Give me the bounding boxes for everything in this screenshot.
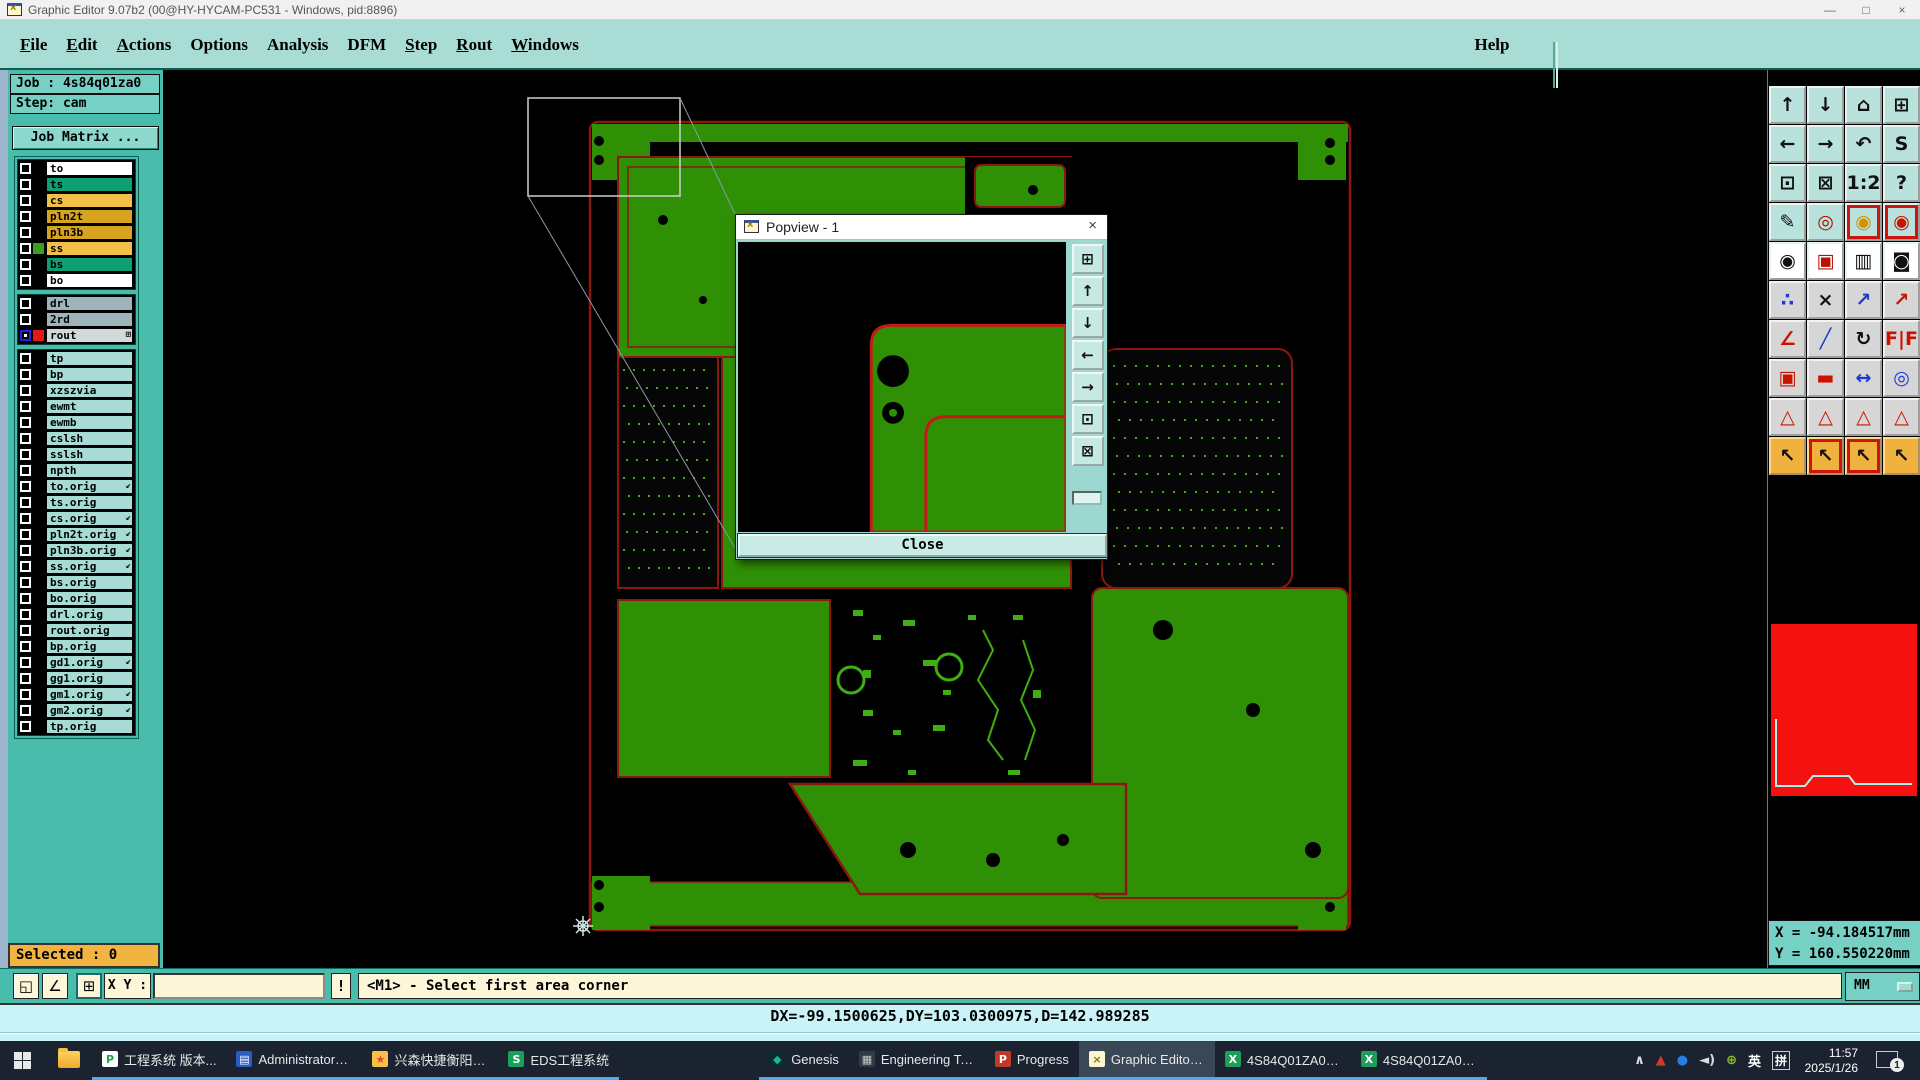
layer-name[interactable]: bs [46, 257, 133, 272]
layer-visibility-checkbox[interactable] [20, 689, 31, 700]
app-label: 4S84Q01ZA0预... [1383, 1050, 1477, 1069]
windows-taskbar: P 工程系统 版本... ▤ Administrator^ ... ★ 兴森快捷… [0, 1041, 1920, 1080]
home-view-icon[interactable]: ⌂ [1845, 86, 1882, 124]
layer-visibility-checkbox[interactable] [20, 417, 31, 428]
layer-name[interactable]: tp [46, 351, 133, 366]
pan-view-up-icon[interactable]: ↑ [1769, 86, 1806, 124]
tray-ime-pin[interactable]: 拼 [1772, 1051, 1790, 1070]
layer-name[interactable]: ss [46, 241, 133, 256]
taskbar-item-4s84-yu[interactable]: X 4S84Q01ZA0预... [1351, 1041, 1487, 1080]
menu-actions[interactable]: Actions [117, 35, 172, 55]
popview-clone-icon[interactable]: ⊞ [1072, 244, 1104, 274]
app-icon: ▦ [859, 1051, 875, 1067]
notification-center-icon[interactable]: 1 [1876, 1051, 1898, 1068]
popview-artwork [738, 242, 1066, 532]
layer-group-misc: tp bp xzszvia ewmt ewmb cslsh [17, 349, 136, 736]
layer-visibility-checkbox[interactable] [20, 353, 31, 364]
menu-dfm[interactable]: DFM [347, 35, 386, 55]
layer-name[interactable]: cslsh [46, 431, 133, 446]
layer-row[interactable]: tp.orig [19, 719, 134, 734]
mirror-feature-icon[interactable]: F|F [1883, 320, 1920, 358]
layer-color-swatch[interactable] [33, 625, 44, 636]
pan-view-down-icon[interactable]: ↓ [1807, 86, 1844, 124]
menu-options[interactable]: Options [190, 35, 248, 55]
layer-visibility-checkbox[interactable] [20, 545, 31, 556]
delta-readout-bar: DX=-99.1500625,DY=103.0300975,D=142.9892… [0, 1003, 1920, 1041]
layer-row[interactable]: bo.orig [19, 591, 134, 606]
measure-ruler-icon[interactable]: ▥ [1845, 242, 1882, 280]
layer-row[interactable]: pln3b.orig↙ [19, 543, 134, 558]
layer-color-swatch[interactable] [33, 529, 44, 540]
menu-divider [1553, 42, 1558, 88]
delta-readout: DX=-99.1500625,DY=103.0300975,D=142.9892… [0, 1007, 1920, 1025]
layer-visibility-checkbox[interactable] [20, 657, 31, 668]
layer-visibility-checkbox[interactable] [20, 609, 31, 620]
layer-flag-icon: ↙ [126, 704, 131, 717]
sidebar: Job : 4s84q01za0 Step: cam Job Matrix ..… [8, 70, 163, 968]
layer-name[interactable]: xzszvia [46, 383, 133, 398]
arc-corner-c-icon[interactable]: △ [1845, 398, 1882, 436]
app-icon: P [102, 1051, 118, 1067]
layer-name[interactable]: npth [46, 463, 133, 478]
app-icon: × [1089, 1051, 1105, 1067]
capture-pad-icon[interactable]: ◙ [1883, 242, 1920, 280]
menu-analysis[interactable]: Analysis [267, 35, 328, 55]
popview-zoom-out-icon[interactable]: ⊠ [1072, 436, 1104, 466]
window-title-bar: Graphic Editor 9.07b2 (00@HY-HYCAM-PC531… [0, 0, 1920, 20]
layer-row[interactable]: bp.orig [19, 639, 134, 654]
layer-flag-icon: ⊞ [126, 329, 131, 342]
zoom-in-area-icon[interactable]: ⊡ [1769, 164, 1806, 202]
menu-windows[interactable]: Windows [511, 35, 579, 55]
layer-row[interactable]: drl.orig [19, 607, 134, 622]
maximize-button[interactable]: □ [1848, 0, 1884, 20]
status-message: <M1> - Select first area corner [358, 973, 1842, 999]
layer-row[interactable]: to.orig↙ [19, 479, 134, 494]
layer-group-board: to ts cs pln2t pln3b ss [17, 159, 136, 290]
layer-visibility-checkbox[interactable] [20, 163, 31, 174]
pan-view-left-icon[interactable]: ← [1769, 125, 1806, 163]
layer-color-swatch[interactable] [33, 577, 44, 588]
layer-color-swatch[interactable] [33, 369, 44, 380]
popview-window-icon [744, 220, 759, 233]
arc-corner-d-icon[interactable]: △ [1883, 398, 1920, 436]
layer-flag-icon: ↙ [126, 480, 131, 493]
popview-toolbar: ⊞↑↓←→⊡⊠ [1068, 242, 1107, 532]
tray-graph-icon[interactable]: ▲ [1656, 1053, 1666, 1068]
start-button[interactable] [14, 1052, 38, 1069]
popview-pan-down-icon[interactable]: ↓ [1072, 308, 1104, 338]
layer-flag-icon: ↙ [126, 560, 131, 573]
pan-view-right-icon[interactable]: → [1807, 125, 1844, 163]
layer-name[interactable]: bs.orig [46, 575, 133, 590]
taskbar-item-graphic-editor[interactable]: × Graphic Editor ... [1079, 1041, 1215, 1080]
minimize-button[interactable]: — [1812, 0, 1848, 20]
measure-distance-icon[interactable]: ↔ [1845, 359, 1882, 397]
copy-circle-icon[interactable]: ↗ [1845, 281, 1882, 319]
layer-name[interactable]: sslsh [46, 447, 133, 462]
layer-visibility-checkbox[interactable] [20, 449, 31, 460]
layer-color-swatch[interactable] [33, 401, 44, 412]
layer-color-swatch[interactable] [33, 259, 44, 270]
popview-title-bar[interactable]: Popview - 1 × [736, 215, 1107, 240]
layer-color-swatch[interactable] [33, 179, 44, 190]
menu-bar: FileEditActionsOptionsAnalysisDFMStepRou… [0, 20, 1920, 70]
setup-tools-icon[interactable]: ✎ [1769, 203, 1806, 241]
layer-name[interactable]: pln2t [46, 209, 133, 224]
layer-row[interactable]: pln2t.orig↙ [19, 527, 134, 542]
popview-dialog: Popview - 1 × ⊞↑↓←→⊡⊠ Close [735, 214, 1108, 560]
layer-row[interactable]: sslsh [19, 447, 134, 462]
taskbar-item-progress[interactable]: P Progress [985, 1041, 1079, 1080]
layer-name[interactable]: ts.orig [46, 495, 133, 510]
layer-visibility-checkbox[interactable] [20, 401, 31, 412]
layer-visibility-checkbox[interactable] [20, 625, 31, 636]
layer-name[interactable]: gd1.orig↙ [46, 655, 133, 670]
layer-name[interactable]: ewmb [46, 415, 133, 430]
signal-layers-a-icon[interactable]: ◉ [1845, 203, 1882, 241]
command-bar: X Y : ! <M1> - Select first area corner … [0, 968, 1920, 1003]
layer-flag-icon: ↙ [126, 656, 131, 669]
layer-row[interactable]: bp [19, 367, 134, 382]
tray-update-icon[interactable]: ⊕ [1726, 1053, 1737, 1068]
tray-volume-icon[interactable]: ◄) [1699, 1053, 1715, 1068]
stretch-pad-icon[interactable]: ▬ [1807, 359, 1844, 397]
layer-row[interactable]: pln2t [19, 209, 134, 224]
popview-close-button[interactable]: Close [738, 534, 1107, 557]
layer-color-swatch[interactable] [33, 275, 44, 286]
app-label: 4S84Q01ZA0制... [1247, 1050, 1341, 1069]
layer-row[interactable]: cs.orig↙ [19, 511, 134, 526]
layer-visibility-checkbox[interactable] [20, 369, 31, 380]
xy-label: X Y : [104, 973, 151, 999]
layer-visibility-checkbox[interactable] [20, 497, 31, 508]
layer-color-swatch[interactable] [33, 385, 44, 396]
layer-row[interactable]: gm2.orig↙ [19, 703, 134, 718]
layer-row[interactable]: rout.orig [19, 623, 134, 638]
delta-separator [0, 1032, 1920, 1034]
app-icon: ◆ [769, 1051, 785, 1067]
layer-color-swatch[interactable] [33, 211, 44, 222]
layer-color-swatch[interactable] [33, 243, 44, 254]
app-label: Engineering To... [881, 1052, 975, 1067]
select-path-icon[interactable]: ↖ [1883, 437, 1920, 475]
zoom-previous-icon[interactable]: ↶ [1845, 125, 1882, 163]
app-window-icon [7, 3, 22, 16]
popview-pan-left-icon[interactable]: ← [1072, 340, 1104, 370]
layer-color-swatch[interactable] [33, 314, 44, 325]
popview-pan-up-icon[interactable]: ↑ [1072, 276, 1104, 306]
layer-row[interactable]: tp [19, 351, 134, 366]
layer-name[interactable]: bo [46, 273, 133, 288]
layer-visibility-checkbox[interactable] [20, 641, 31, 652]
taskbar-item-administrator[interactable]: ▤ Administrator^ ... [226, 1041, 362, 1080]
layer-flag-icon: ↙ [126, 688, 131, 701]
taskbar-clock[interactable]: 11:572025/1/26 [1794, 1046, 1858, 1076]
layer-color-swatch[interactable] [33, 497, 44, 508]
cursor-crosshair-icon [573, 916, 593, 936]
layer-name[interactable]: gg1.orig [46, 671, 133, 686]
layer-name[interactable]: bp.orig [46, 639, 133, 654]
window-frame-strip [0, 20, 8, 1041]
job-label: Job : 4s84q01za0 [10, 74, 160, 94]
layer-color-swatch[interactable] [33, 705, 44, 716]
layer-flag-icon: ↙ [126, 512, 131, 525]
layer-name[interactable]: gm1.orig↙ [46, 687, 133, 702]
menu-step[interactable]: Step [405, 35, 437, 55]
layer-row[interactable]: pln3b [19, 225, 134, 240]
units-panel: MM [1845, 972, 1920, 1001]
taskbar-item-4s84-zhi[interactable]: X 4S84Q01ZA0制... [1215, 1041, 1351, 1080]
layer-row[interactable]: xzszvia [19, 383, 134, 398]
tray-ime-lang[interactable]: 英 [1748, 1051, 1761, 1070]
layer-color-swatch[interactable] [33, 298, 44, 309]
measure-angle-icon[interactable]: ∠ [1769, 320, 1806, 358]
right-toolbar-column: ↑↓⌂⊞←→↶S⊡⊠1:2?✎◎◉◉◉▣▥◙∴×↗↗∠╱↻F|F▣▬↔◎△△△△… [1767, 70, 1920, 968]
layer-flag-icon: ↙ [126, 544, 131, 557]
layer-row[interactable]: ts.orig [19, 495, 134, 510]
layer-color-swatch[interactable] [33, 465, 44, 476]
layer-color-swatch[interactable] [33, 433, 44, 444]
tray-browser-icon[interactable]: ● [1677, 1053, 1688, 1068]
copy-pad-icon[interactable]: ↗ [1883, 281, 1920, 319]
app-label: Administrator^ ... [258, 1052, 352, 1067]
layer-row[interactable]: ewmb [19, 415, 134, 430]
layer-row[interactable]: cslsh [19, 431, 134, 446]
layer-visibility-checkbox[interactable] [20, 298, 31, 309]
layer-visibility-checkbox[interactable] [20, 721, 31, 732]
layer-color-swatch[interactable] [33, 593, 44, 604]
popview-pan-right-icon[interactable]: → [1072, 372, 1104, 402]
layer-name[interactable]: ts [46, 177, 133, 192]
layer-name[interactable]: tp.orig [46, 719, 133, 734]
signal-layers-b-icon[interactable]: ◉ [1883, 203, 1920, 241]
layer-row[interactable]: bs.orig [19, 575, 134, 590]
layer-visibility-checkbox[interactable] [20, 593, 31, 604]
menu-file[interactable]: File [20, 35, 47, 55]
selected-count: Selected : 0 [8, 943, 160, 968]
layer-row[interactable]: 2rd [19, 312, 134, 327]
layer-color-swatch[interactable] [33, 481, 44, 492]
tray-chevron-icon[interactable]: ∧ [1634, 1053, 1645, 1068]
layer-name[interactable]: pln3b [46, 225, 133, 240]
layer-name[interactable]: pln2t.orig↙ [46, 527, 133, 542]
popview-scroll-thumb[interactable] [1072, 491, 1102, 505]
transform-box-icon[interactable]: ▣ [1807, 242, 1844, 280]
menu-help[interactable]: Help [1462, 20, 1522, 70]
layer-name[interactable]: bp [46, 367, 133, 382]
popview-close-x-button[interactable]: × [1088, 217, 1097, 234]
app-icon: X [1225, 1051, 1241, 1067]
select-frame-icon[interactable]: ↖ [1807, 437, 1844, 475]
app-label: 工程系统 版本... [124, 1050, 216, 1069]
layer-name[interactable]: drl.orig [46, 607, 133, 622]
measure-mode-button[interactable]: ∠ [42, 973, 68, 999]
zoom-area-mode-button[interactable]: ◱ [13, 973, 39, 999]
layer-name[interactable]: gm2.orig↙ [46, 703, 133, 718]
layer-list: to ts cs pln2t pln3b ss [14, 156, 139, 739]
app-label: Progress [1017, 1052, 1069, 1067]
close-button[interactable]: × [1884, 0, 1920, 20]
units-toggle[interactable] [1897, 982, 1913, 992]
layer-visibility-checkbox[interactable] [20, 259, 31, 270]
layer-color-swatch[interactable] [33, 657, 44, 668]
menu-rout[interactable]: Rout [456, 35, 492, 55]
command-bang-button[interactable]: ! [331, 973, 351, 999]
query-feature-icon[interactable]: ? [1883, 164, 1920, 202]
layer-visibility-checkbox[interactable] [20, 577, 31, 588]
layer-name[interactable]: to [46, 161, 133, 176]
arc-corner-a-icon[interactable]: △ [1769, 398, 1806, 436]
layer-color-swatch[interactable] [33, 641, 44, 652]
layer-visibility-checkbox[interactable] [20, 227, 31, 238]
app-icon: S [508, 1051, 524, 1067]
layer-row[interactable]: ss [19, 241, 134, 256]
layer-visibility-checkbox[interactable] [20, 433, 31, 444]
layer-visibility-checkbox[interactable] [20, 465, 31, 476]
layer-color-swatch[interactable] [33, 609, 44, 620]
taskbar-item-xingsen[interactable]: ★ 兴森快捷衡阳分... [362, 1041, 498, 1080]
grid-snap-icon[interactable]: ◎ [1807, 203, 1844, 241]
layer-visibility-checkbox[interactable] [20, 330, 31, 341]
popview-zoom-in-icon[interactable]: ⊡ [1072, 404, 1104, 434]
app-label: Genesis [791, 1052, 839, 1067]
taskbar-item-engineering[interactable]: ▦ Engineering To... [849, 1041, 985, 1080]
layer-visibility-checkbox[interactable] [20, 513, 31, 524]
layer-visibility-checkbox[interactable] [20, 673, 31, 684]
layer-visibility-checkbox[interactable] [20, 481, 31, 492]
layer-name[interactable]: rout⊞ [46, 328, 133, 343]
app-icon: ★ [372, 1051, 388, 1067]
overview-thumbnail[interactable] [1771, 624, 1917, 796]
layer-group-drill: drl 2rd rout⊞ [17, 294, 136, 345]
window-title: Graphic Editor 9.07b2 (00@HY-HYCAM-PC531… [28, 3, 397, 17]
taskbar-item-gongcheng[interactable]: P 工程系统 版本... [92, 1041, 226, 1080]
layer-row[interactable]: gm1.orig↙ [19, 687, 134, 702]
layer-visibility-checkbox[interactable] [20, 211, 31, 222]
select-pointer-icon[interactable]: ↖ [1769, 437, 1806, 475]
layer-color-swatch[interactable] [33, 163, 44, 174]
delete-feature-icon[interactable]: × [1807, 281, 1844, 319]
split-view-xy-icon[interactable]: ⊞ [1883, 86, 1920, 124]
menu-edit[interactable]: Edit [66, 35, 97, 55]
select-round-feature-icon[interactable]: ◉ [1769, 242, 1806, 280]
layer-row[interactable]: ss.orig↙ [19, 559, 134, 574]
zoom-ratio-1-2-icon[interactable]: 1:2 [1845, 164, 1882, 202]
layer-flag-icon: ↙ [126, 528, 131, 541]
layer-visibility-checkbox[interactable] [20, 275, 31, 286]
popview-canvas[interactable] [738, 242, 1066, 532]
layer-name[interactable]: 2rd [46, 312, 133, 327]
xy-coordinate-input[interactable] [153, 973, 325, 999]
layer-color-swatch[interactable] [33, 417, 44, 428]
layer-color-swatch[interactable] [33, 545, 44, 556]
layer-name[interactable]: pln3b.orig↙ [46, 543, 133, 558]
layer-name[interactable]: drl [46, 296, 133, 311]
layer-color-swatch[interactable] [33, 353, 44, 364]
file-explorer-button[interactable] [58, 1051, 80, 1068]
step-label: Step: cam [10, 94, 160, 114]
layer-name[interactable]: bo.orig [46, 591, 133, 606]
layer-name[interactable]: cs.orig↙ [46, 511, 133, 526]
layer-visibility-checkbox[interactable] [20, 314, 31, 325]
job-matrix-button[interactable]: Job Matrix ... [12, 126, 159, 150]
layer-visibility-checkbox[interactable] [20, 195, 31, 206]
layer-color-swatch[interactable] [33, 513, 44, 524]
layer-visibility-checkbox[interactable] [20, 243, 31, 254]
app-label: Graphic Editor ... [1111, 1052, 1205, 1067]
layer-visibility-checkbox[interactable] [20, 561, 31, 572]
app-icon: X [1361, 1051, 1377, 1067]
swap-pads-icon[interactable]: ▣ [1769, 359, 1806, 397]
layer-row[interactable]: bo [19, 273, 134, 288]
layer-color-swatch[interactable] [33, 330, 44, 341]
layer-visibility-checkbox[interactable] [20, 179, 31, 190]
app-icon: ▤ [236, 1051, 252, 1067]
layer-color-swatch[interactable] [33, 721, 44, 732]
taskbar-item-genesis[interactable]: ◆ Genesis [759, 1041, 849, 1080]
app-label: 兴森快捷衡阳分... [394, 1050, 488, 1069]
net-points-icon[interactable]: ∴ [1769, 281, 1806, 319]
app-icon: P [995, 1051, 1011, 1067]
layer-visibility-checkbox[interactable] [20, 529, 31, 540]
layer-visibility-checkbox[interactable] [20, 385, 31, 396]
layer-row[interactable]: gd1.orig↙ [19, 655, 134, 670]
layer-row[interactable]: npth [19, 463, 134, 478]
layer-name[interactable]: cs [46, 193, 133, 208]
layer-color-swatch[interactable] [33, 561, 44, 572]
layer-row[interactable]: cs [19, 193, 134, 208]
layer-name[interactable]: to.orig↙ [46, 479, 133, 494]
arc-corner-b-icon[interactable]: △ [1807, 398, 1844, 436]
zoom-path-icon[interactable]: S [1883, 125, 1920, 163]
layer-color-swatch[interactable] [33, 673, 44, 684]
layer-color-swatch[interactable] [33, 195, 44, 206]
layer-row[interactable]: ewmt [19, 399, 134, 414]
layer-name[interactable]: ewmt [46, 399, 133, 414]
layer-row[interactable]: to [19, 161, 134, 176]
cursor-coordinates: X = -94.184517mmY = 160.550220mm [1768, 920, 1920, 966]
layer-name[interactable]: ss.orig↙ [46, 559, 133, 574]
layer-row[interactable]: drl [19, 296, 134, 311]
layer-row[interactable]: rout⊞ [19, 328, 134, 343]
layer-row[interactable]: ts [19, 177, 134, 192]
rotate-feature-icon[interactable]: ↻ [1845, 320, 1882, 358]
zoom-out-icon[interactable]: ⊠ [1807, 164, 1844, 202]
layer-color-swatch[interactable] [33, 689, 44, 700]
layer-row[interactable]: bs [19, 257, 134, 272]
units-label: MM [1854, 978, 1870, 993]
layer-name[interactable]: rout.orig [46, 623, 133, 638]
layer-visibility-checkbox[interactable] [20, 705, 31, 716]
layer-color-swatch[interactable] [33, 227, 44, 238]
taskbar-item-eds[interactable]: S EDS工程系统 [498, 1041, 619, 1080]
merge-shapes-icon[interactable]: ◎ [1883, 359, 1920, 397]
popview-title: Popview - 1 [766, 219, 839, 235]
app-label: EDS工程系统 [530, 1050, 609, 1069]
select-polygon-icon[interactable]: ↖ [1845, 437, 1882, 475]
draw-line-icon[interactable]: ╱ [1807, 320, 1844, 358]
layer-row[interactable]: gg1.orig [19, 671, 134, 686]
layer-color-swatch[interactable] [33, 449, 44, 460]
tile-views-button[interactable]: ⊞ [76, 973, 102, 999]
